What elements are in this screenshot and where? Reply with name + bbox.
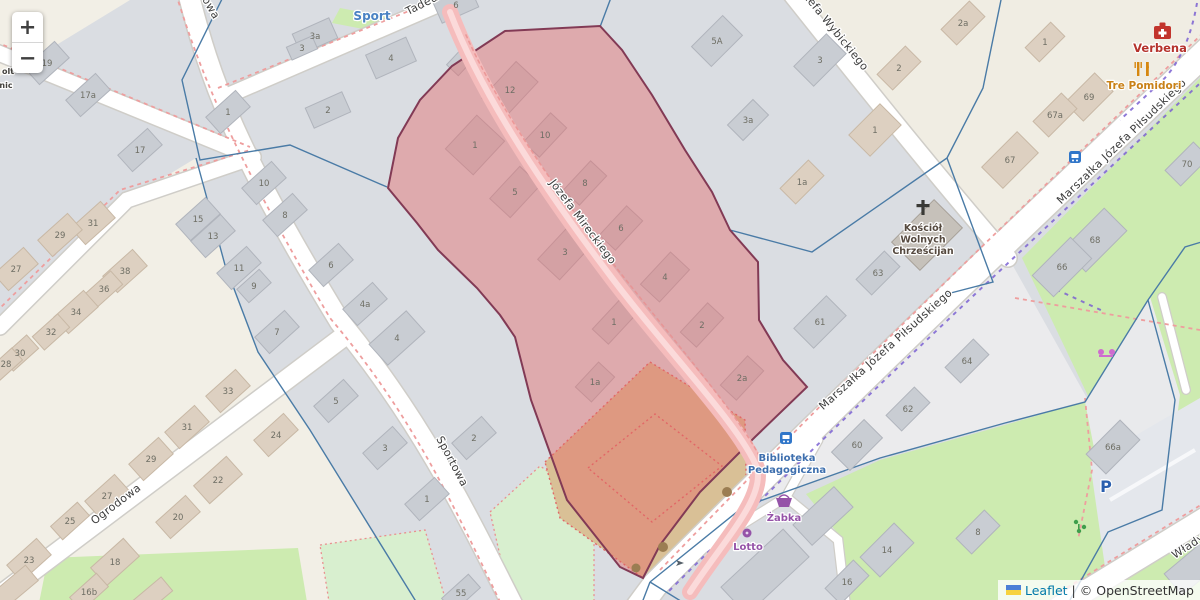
attribution-bar: Leaflet | © OpenStreetMap: [998, 580, 1200, 600]
house-number-label: 2a: [958, 19, 969, 29]
house-number-label: 1a: [797, 178, 808, 188]
house-number-label: 31: [182, 423, 193, 433]
house-number-label: 9: [251, 282, 256, 292]
leaflet-link[interactable]: Leaflet: [1025, 583, 1068, 598]
house-number-label: 5A: [711, 37, 722, 47]
house-number-label: 36: [99, 285, 110, 295]
house-number-label: 5: [333, 397, 338, 407]
house-number-label: 32: [46, 328, 57, 338]
house-number-label: 61: [815, 318, 826, 328]
house-number-label: 1: [472, 141, 477, 151]
house-number-label: 4a: [360, 300, 371, 310]
zoom-in-button[interactable]: +: [12, 12, 43, 43]
house-number-label: 55: [456, 589, 467, 599]
house-number-label: 29: [55, 231, 66, 241]
house-number-label: 1: [1042, 38, 1047, 48]
house-number-label: 10: [540, 131, 551, 141]
bus-stop-icon: [1069, 151, 1081, 163]
house-number-label: 67: [1005, 156, 1016, 166]
house-number-label: 1: [872, 126, 877, 136]
house-number-label: 8: [582, 179, 587, 189]
house-number-label: 11: [234, 264, 245, 274]
house-number-label: 4: [388, 54, 393, 64]
house-number-label: 4: [394, 334, 399, 344]
bus-stop-icon: [780, 432, 792, 444]
house-number-label: 15: [193, 215, 204, 225]
house-number-label: 25: [65, 517, 76, 527]
poi-label-church: Chrześcijan: [892, 246, 954, 257]
house-number-label: 12: [505, 86, 516, 96]
house-number-label: 24: [271, 431, 282, 441]
poi-label-church: Kościół: [904, 223, 943, 234]
house-number-label: 2a: [737, 374, 748, 384]
house-number-label: 29: [146, 455, 157, 465]
house-number-label: 66a: [1105, 443, 1121, 453]
house-number-label: 6: [453, 1, 458, 11]
house-number-label: 2: [699, 321, 704, 331]
house-number-label: 60: [852, 441, 863, 451]
house-number-label: 3: [562, 248, 567, 258]
ukraine-flag-icon: [1006, 585, 1021, 595]
house-number-label: 5: [512, 188, 517, 198]
house-number-label: 69: [1084, 93, 1095, 103]
house-number-label: 62: [903, 405, 914, 415]
house-number-label: 1: [424, 495, 429, 505]
house-number-label: 28: [1, 360, 12, 370]
house-number-label: 18: [110, 558, 121, 568]
house-number-label: 8: [975, 528, 980, 538]
house-number-label: 4: [662, 273, 667, 283]
poi-label-biblioteka: Pedagogiczna: [748, 465, 826, 476]
poi-label-lotto: Lotto: [733, 542, 763, 553]
lotto-icon: [743, 529, 752, 538]
house-number-label: 70: [1182, 160, 1193, 170]
zoom-out-button[interactable]: −: [12, 43, 43, 73]
poi-label-church: Wolnych: [900, 235, 946, 246]
map-canvas[interactable]: 17a1719110864a41513119753125531292738363…: [0, 0, 1200, 600]
map-viewport: 17a1719110864a41513119753125531292738363…: [0, 0, 1200, 600]
house-number-label: 2: [896, 64, 901, 74]
house-number-label: 10: [259, 179, 270, 189]
house-number-label: 2: [325, 106, 330, 116]
house-number-label: 33: [223, 387, 234, 397]
house-number-label: 20: [173, 513, 184, 523]
house-number-label: 19: [42, 59, 53, 69]
house-number-label: 27: [11, 265, 22, 275]
poi-label-poi-fragment-2: nic: [0, 81, 13, 90]
house-number-label: 3: [817, 56, 822, 66]
house-number-label: 34: [71, 308, 82, 318]
poi-label-tre-pomidori: Tre Pomidori: [1107, 80, 1182, 92]
house-number-label: 17a: [80, 91, 96, 101]
house-number-label: 63: [873, 269, 884, 279]
house-number-label: 6: [618, 224, 623, 234]
house-number-label: 16b: [81, 588, 97, 598]
poi-label-sport: Sport: [353, 9, 390, 23]
house-number-label: 16: [842, 578, 853, 588]
poi-label-parking: P: [1100, 477, 1112, 496]
poi-label-biblioteka: Biblioteka: [759, 453, 816, 464]
house-number-label: 23: [24, 556, 35, 566]
house-number-label: 1: [611, 318, 616, 328]
house-number-label: 31: [88, 219, 99, 229]
house-number-label: 7: [274, 328, 279, 338]
house-number-label: 38: [120, 267, 131, 277]
house-number-label: 8: [282, 211, 287, 221]
zoom-control: + −: [12, 12, 43, 73]
house-number-label: 22: [213, 476, 224, 486]
house-number-label: 67a: [1047, 111, 1063, 121]
house-number-label: 64: [962, 357, 973, 367]
attribution-divider: |: [1072, 583, 1076, 598]
house-number-label: 1a: [590, 378, 601, 388]
house-number-label: 3: [382, 444, 387, 454]
house-number-label: 3: [299, 44, 304, 54]
poi-label-zabka: Żabka: [767, 510, 802, 524]
house-number-label: 6: [328, 261, 333, 271]
house-number-label: 68: [1090, 236, 1101, 246]
house-number-label: 3a: [743, 116, 754, 126]
house-number-label: 66: [1057, 263, 1068, 273]
house-number-label: 17: [135, 146, 146, 156]
house-number-label: 2: [471, 434, 476, 444]
openstreetmap-link[interactable]: © OpenStreetMap: [1080, 583, 1194, 598]
house-number-label: 1: [225, 108, 230, 118]
house-number-label: 14: [882, 546, 893, 556]
house-number-label: 13: [208, 232, 219, 242]
house-number-label: 30: [15, 349, 26, 359]
poi-label-verbena: Verbena: [1133, 41, 1187, 55]
house-number-label: 3a: [310, 32, 321, 42]
